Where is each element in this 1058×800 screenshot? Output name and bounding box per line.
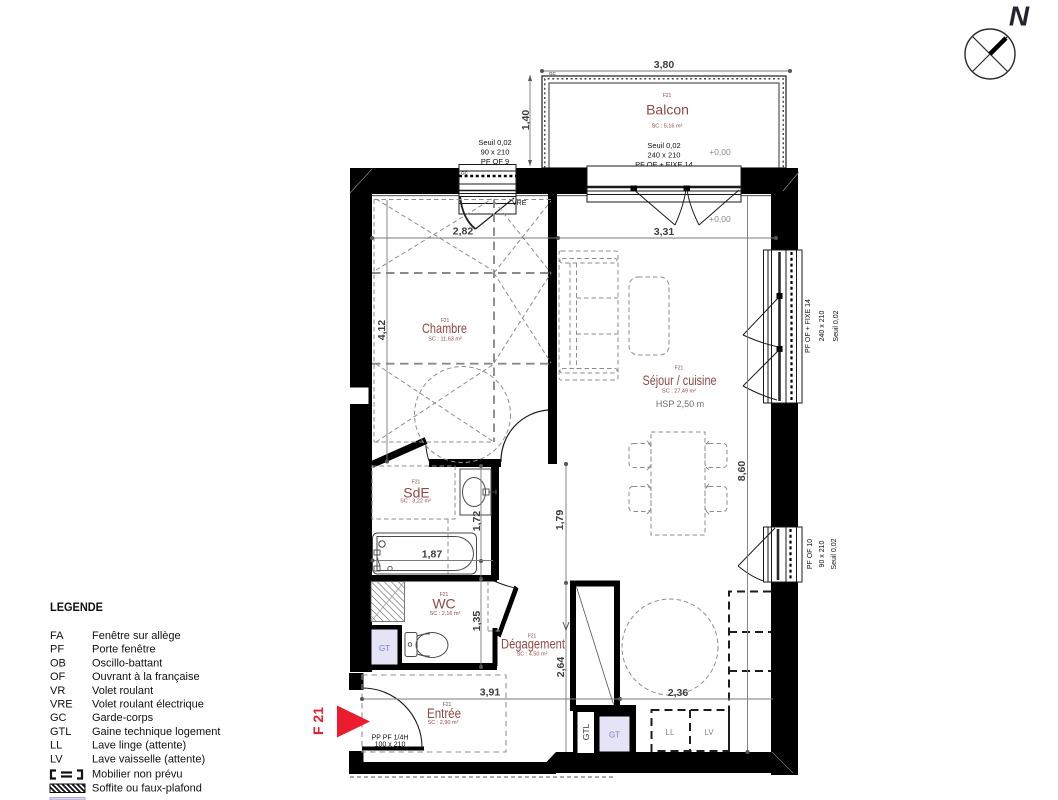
svg-text:Seuil 0,02: Seuil 0,02 xyxy=(478,138,511,147)
svg-text:VRE: VRE xyxy=(50,699,73,711)
svg-text:PP PF 1/4H: PP PF 1/4H xyxy=(372,735,409,742)
svg-text:WC: WC xyxy=(432,596,455,612)
svg-text:8,60: 8,60 xyxy=(736,461,748,482)
svg-text:PF: PF xyxy=(50,644,64,656)
svg-text:GT: GT xyxy=(609,731,620,740)
svg-text:PF OF + FIXE 14: PF OF + FIXE 14 xyxy=(805,299,812,353)
svg-text:F 21: F 21 xyxy=(310,707,326,735)
svg-text:1,79: 1,79 xyxy=(554,510,566,531)
svg-text:100 x 210: 100 x 210 xyxy=(375,742,406,749)
svg-text:1,72: 1,72 xyxy=(471,511,483,532)
svg-text:GC: GC xyxy=(50,712,67,724)
svg-text:GC: GC xyxy=(461,171,469,176)
svg-text:3,91: 3,91 xyxy=(480,687,501,699)
svg-text:+0,00: +0,00 xyxy=(709,147,731,157)
svg-text:Seuil 0,02: Seuil 0,02 xyxy=(833,310,840,341)
svg-text:PF OF 9: PF OF 9 xyxy=(481,157,509,166)
svg-text:LL: LL xyxy=(666,728,675,737)
svg-text:SC : 5,16 m²: SC : 5,16 m² xyxy=(652,124,683,130)
svg-text:90 x 210: 90 x 210 xyxy=(481,148,510,157)
svg-text:Seuil 0,02: Seuil 0,02 xyxy=(647,141,680,150)
svg-text:2,64: 2,64 xyxy=(555,657,567,678)
svg-text:Garde-corps: Garde-corps xyxy=(92,712,154,724)
svg-text:GC: GC xyxy=(549,71,557,76)
svg-text:LEGENDE: LEGENDE xyxy=(50,600,103,614)
svg-text:4,12: 4,12 xyxy=(376,320,388,341)
svg-text:VRE: VRE xyxy=(512,200,527,207)
svg-text:GT: GT xyxy=(379,644,390,653)
svg-text:1,40: 1,40 xyxy=(520,110,532,131)
svg-text:Ouvrant à la française: Ouvrant à la française xyxy=(92,671,200,683)
svg-text:Dégagement: Dégagement xyxy=(501,637,565,652)
svg-text:Oscillo-battant: Oscillo-battant xyxy=(92,657,162,669)
svg-text:240 x 210: 240 x 210 xyxy=(819,311,826,342)
svg-text:Balcon: Balcon xyxy=(646,102,689,118)
svg-text:1,87: 1,87 xyxy=(422,549,443,561)
svg-text:FA: FA xyxy=(50,630,64,642)
svg-text:SC : 4,50 m²: SC : 4,50 m² xyxy=(517,652,548,658)
svg-text:Porte fenêtre: Porte fenêtre xyxy=(92,644,156,656)
svg-text:GTL: GTL xyxy=(50,726,71,738)
svg-text:SC : 27,49 m²: SC : 27,49 m² xyxy=(662,389,696,395)
svg-text:Séjour / cuisine: Séjour / cuisine xyxy=(643,373,717,388)
svg-text:SC : 11,63 m²: SC : 11,63 m² xyxy=(428,337,462,343)
svg-text:LL: LL xyxy=(50,740,62,752)
svg-text:2,82: 2,82 xyxy=(453,226,474,238)
svg-text:LV: LV xyxy=(50,753,63,765)
svg-text:SC : 2,90 m²: SC : 2,90 m² xyxy=(428,720,459,726)
svg-text:Mobilier non prévu: Mobilier non prévu xyxy=(92,769,183,781)
svg-text:F21: F21 xyxy=(675,366,684,372)
svg-text:1,35: 1,35 xyxy=(471,611,483,632)
svg-text:Chambre: Chambre xyxy=(422,320,467,336)
svg-text:SC : 3,22 m²: SC : 3,22 m² xyxy=(400,499,431,505)
svg-text:SC : 2,16 m²: SC : 2,16 m² xyxy=(430,611,461,617)
svg-text:VR: VR xyxy=(50,685,65,697)
svg-text:HSP 2,50 m: HSP 2,50 m xyxy=(656,399,704,409)
svg-text:240 x 210: 240 x 210 xyxy=(648,151,681,160)
svg-text:N: N xyxy=(1009,1,1030,32)
svg-text:OF: OF xyxy=(50,671,66,683)
svg-text:+0,00: +0,00 xyxy=(709,214,731,224)
svg-text:F21: F21 xyxy=(663,93,672,99)
svg-text:Seuil 0,02: Seuil 0,02 xyxy=(831,538,838,569)
svg-text:GTL: GTL xyxy=(581,723,591,740)
svg-text:90 x 210: 90 x 210 xyxy=(819,540,826,567)
svg-text:Soffite ou faux-plafond: Soffite ou faux-plafond xyxy=(92,783,202,795)
svg-text:Fenêtre sur allège: Fenêtre sur allège xyxy=(92,630,181,642)
svg-text:Entrée: Entrée xyxy=(427,706,461,721)
svg-text:3,80: 3,80 xyxy=(654,59,675,71)
svg-text:Volet roulant: Volet roulant xyxy=(92,685,153,697)
svg-text:PF OF 10: PF OF 10 xyxy=(807,539,814,569)
svg-text:2,36: 2,36 xyxy=(668,687,689,699)
svg-text:Volet roulant électrique: Volet roulant électrique xyxy=(92,699,204,711)
svg-text:Lave vaisselle (attente): Lave vaisselle (attente) xyxy=(92,753,205,765)
svg-text:Lave linge (attente): Lave linge (attente) xyxy=(92,740,186,752)
svg-text:3,31: 3,31 xyxy=(654,226,675,238)
svg-text:OB: OB xyxy=(50,657,66,669)
svg-text:Gaine technique logement: Gaine technique logement xyxy=(92,726,220,738)
svg-text:LV: LV xyxy=(704,728,714,737)
